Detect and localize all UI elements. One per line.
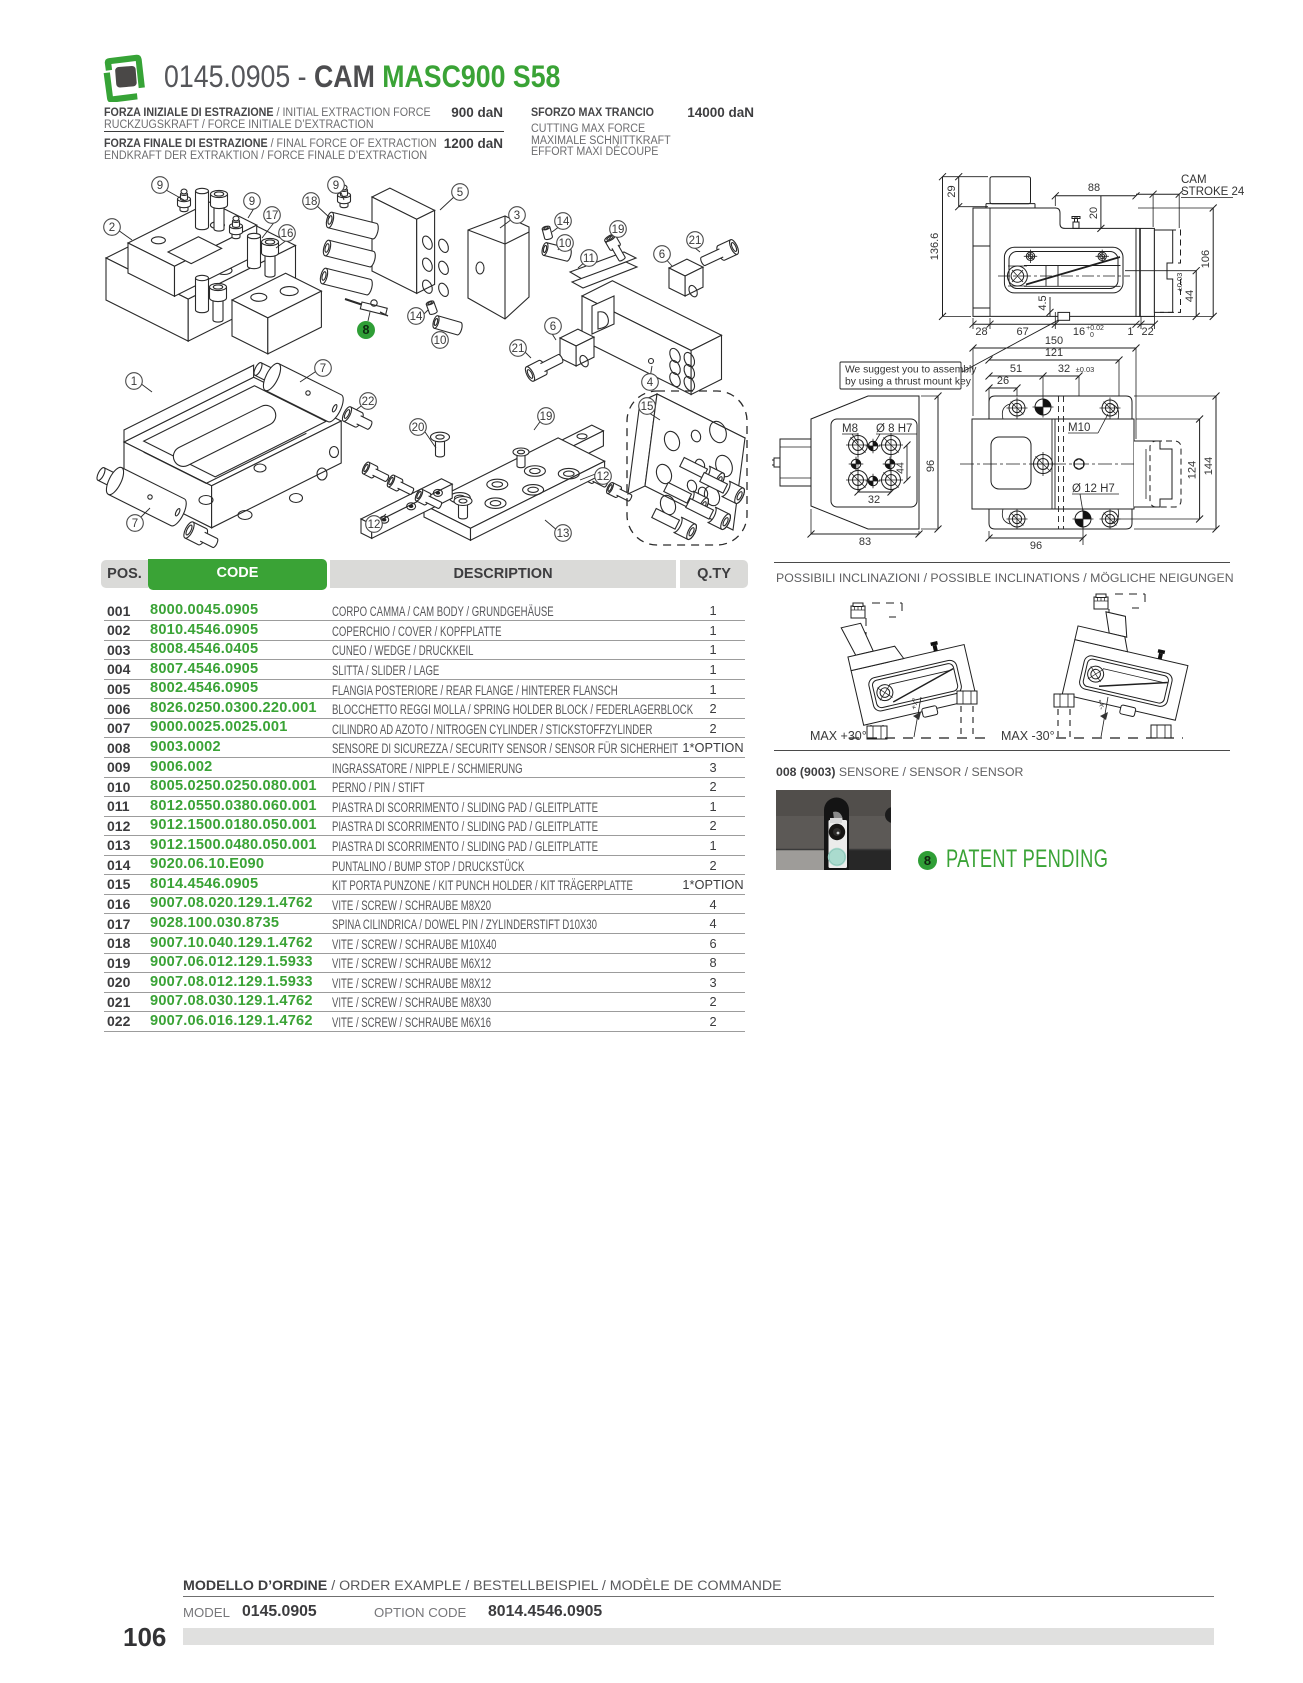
svg-text:67: 67 [1016, 326, 1028, 338]
svg-text:22: 22 [1141, 326, 1153, 338]
svg-text:11: 11 [583, 253, 595, 265]
svg-text:12: 12 [368, 519, 381, 531]
svg-text:16: 16 [1073, 326, 1085, 338]
svg-text:13: 13 [557, 528, 570, 540]
svg-text:Ø 12 H7: Ø 12 H7 [1072, 483, 1115, 495]
svg-text:MAX +30°: MAX +30° [810, 729, 867, 743]
svg-text:136.6: 136.6 [929, 233, 941, 261]
svg-text:88: 88 [1088, 182, 1100, 194]
svg-text:17: 17 [266, 210, 279, 222]
svg-text:32: 32 [1058, 363, 1070, 375]
svg-text:1: 1 [1127, 326, 1133, 338]
svg-text:96: 96 [925, 460, 937, 472]
svg-text:9: 9 [157, 180, 163, 192]
svg-text:STROKE 24: STROKE 24 [1181, 186, 1245, 198]
svg-text:12: 12 [597, 471, 610, 483]
svg-text:9: 9 [249, 196, 255, 208]
svg-text:28: 28 [975, 326, 987, 338]
svg-text:+0.02: +0.02 [1086, 325, 1104, 332]
svg-text:20: 20 [412, 422, 425, 434]
svg-text:21: 21 [689, 235, 702, 247]
svg-text:21: 21 [512, 343, 525, 355]
svg-text:±0.03: ±0.03 [1175, 273, 1184, 292]
svg-text:14: 14 [410, 311, 423, 323]
svg-text:4: 4 [647, 377, 654, 389]
svg-text:26: 26 [997, 375, 1009, 387]
svg-text:15: 15 [641, 401, 654, 413]
svg-text:1: 1 [131, 376, 137, 388]
svg-text:44: 44 [1184, 290, 1196, 302]
svg-text:106: 106 [1200, 250, 1212, 268]
svg-text:CAM: CAM [1181, 174, 1207, 186]
svg-text:29: 29 [946, 185, 958, 197]
svg-text:22: 22 [362, 396, 375, 408]
svg-text:We suggest you to assembly: We suggest you to assembly [845, 365, 977, 376]
svg-text:10: 10 [434, 335, 447, 347]
svg-text:150: 150 [1045, 335, 1063, 347]
svg-text:7: 7 [132, 518, 138, 530]
svg-text:18: 18 [305, 196, 318, 208]
svg-text:5: 5 [457, 187, 463, 199]
svg-text:9: 9 [333, 180, 339, 192]
svg-text:7: 7 [320, 363, 326, 375]
svg-text:3: 3 [514, 210, 520, 222]
svg-text:0: 0 [1090, 332, 1094, 339]
svg-text:M8: M8 [842, 423, 858, 435]
svg-text:10: 10 [559, 238, 572, 250]
svg-text:6: 6 [550, 321, 556, 333]
svg-text:Ø 8 H7: Ø 8 H7 [876, 423, 912, 435]
svg-text:8: 8 [363, 323, 370, 337]
svg-text:2: 2 [109, 222, 115, 234]
svg-text:32: 32 [868, 494, 880, 506]
svg-text:20: 20 [1088, 207, 1100, 219]
svg-text:16: 16 [281, 228, 294, 240]
svg-text:51: 51 [1010, 363, 1022, 375]
svg-text:96: 96 [1030, 540, 1042, 552]
svg-text:19: 19 [540, 411, 553, 423]
svg-text:144: 144 [1203, 457, 1215, 475]
svg-text:-x°: -x° [1096, 699, 1107, 710]
svg-text:6: 6 [659, 249, 665, 261]
svg-text:121: 121 [1045, 347, 1063, 359]
svg-text:83: 83 [859, 536, 871, 548]
svg-text:14: 14 [557, 216, 570, 228]
svg-text:19: 19 [612, 224, 625, 236]
svg-text:4.5: 4.5 [1037, 295, 1049, 310]
svg-text:MAX -30°: MAX -30° [1001, 729, 1055, 743]
svg-text:±0.03: ±0.03 [1076, 365, 1095, 374]
svg-text:44: 44 [895, 462, 907, 474]
svg-text:124: 124 [1187, 461, 1199, 479]
svg-text:by using a thrust mount key: by using a thrust mount key [845, 377, 972, 388]
svg-text:M10: M10 [1068, 422, 1090, 434]
